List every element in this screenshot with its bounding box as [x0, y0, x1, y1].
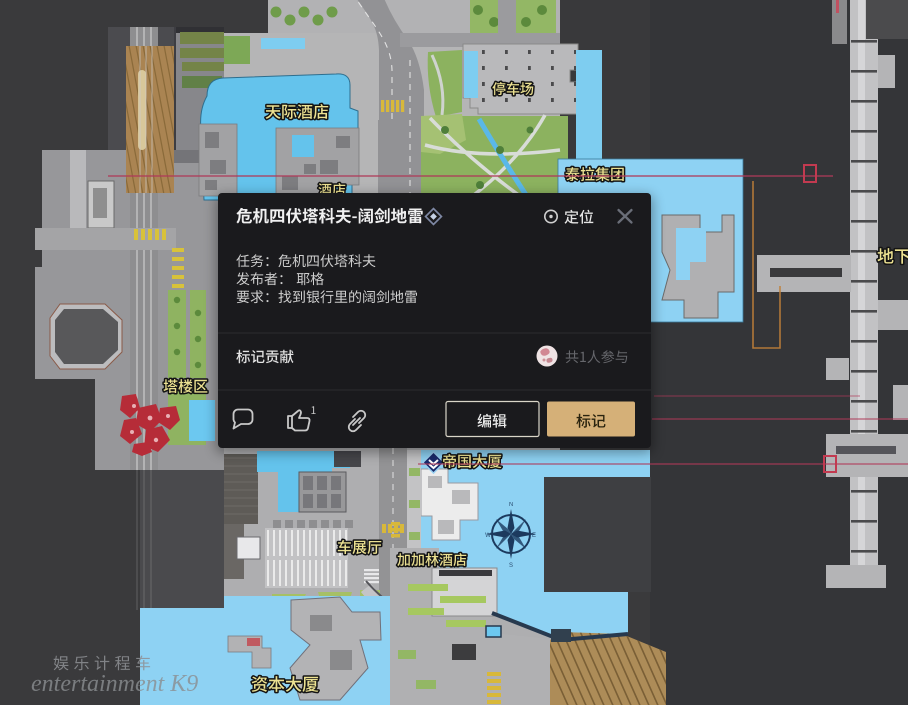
svg-text:entertainment K9: entertainment K9 [31, 671, 198, 697]
svg-text:S: S [509, 563, 513, 569]
svg-text:N: N [509, 502, 513, 508]
